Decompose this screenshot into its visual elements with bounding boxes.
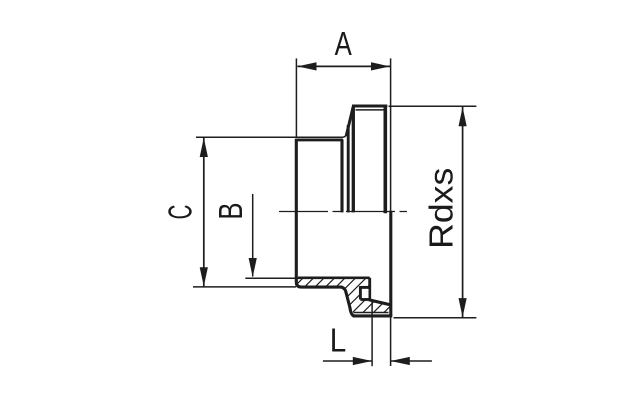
svg-text:A: A bbox=[335, 26, 352, 63]
svg-text:B: B bbox=[213, 202, 250, 219]
svg-text:L: L bbox=[330, 322, 347, 359]
svg-text:C: C bbox=[161, 205, 198, 220]
svg-text:Rdxs: Rdxs bbox=[424, 168, 461, 249]
